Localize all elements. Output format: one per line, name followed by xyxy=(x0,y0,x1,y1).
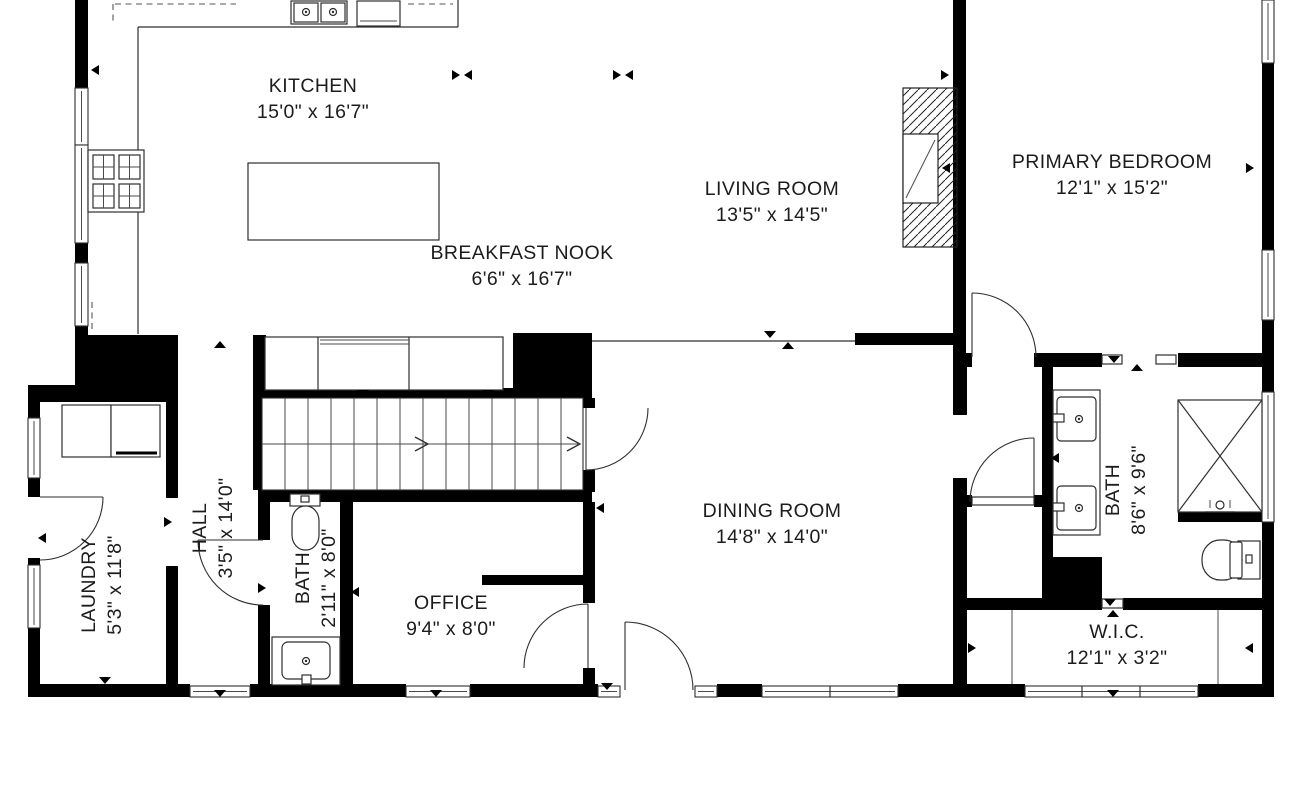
primary-bedroom-door xyxy=(972,293,1036,357)
window xyxy=(1262,0,1274,63)
staircase xyxy=(262,398,583,490)
bathroom-sink-icon xyxy=(272,637,340,685)
window xyxy=(1262,250,1274,320)
room-label-breakfast-nook: BREAKFAST NOOK 6'6" x 16'7" xyxy=(431,242,614,290)
kitchen-fixtures xyxy=(88,0,458,334)
room-label-bath-primary: BATH 8'6" x 9'6" xyxy=(1102,445,1150,535)
sidelite-window xyxy=(695,686,717,697)
range-stove-icon xyxy=(88,150,144,212)
shower-icon xyxy=(1178,400,1262,512)
room-name: PRIMARY BEDROOM xyxy=(1012,151,1212,173)
room-name: W.I.C. xyxy=(1089,621,1144,643)
room-label-dining-room: DINING ROOM 14'8" x 14'0" xyxy=(703,500,842,548)
walls xyxy=(28,0,1274,697)
entry-door xyxy=(625,622,693,690)
window xyxy=(28,418,40,478)
room-name: LAUNDRY xyxy=(78,537,100,633)
room-label-hall: HALL 3'5" x 14'0" xyxy=(189,478,237,579)
window xyxy=(75,145,88,243)
room-name: BATH xyxy=(292,552,314,604)
room-name: BATH xyxy=(1102,464,1124,516)
dryer-icon xyxy=(111,405,160,457)
dishwasher-icon xyxy=(357,1,400,26)
room-dimensions: 12'1" x 15'2" xyxy=(1056,177,1168,199)
office-door xyxy=(524,604,588,668)
room-label-wic: W.I.C. 12'1" x 3'2" xyxy=(1067,621,1168,669)
room-label-kitchen: KITCHEN 15'0" x 16'7" xyxy=(257,75,369,123)
room-dimensions: 9'4" x 8'0" xyxy=(406,618,496,640)
window xyxy=(1262,392,1274,522)
kitchen-island xyxy=(248,163,439,240)
window xyxy=(75,263,88,326)
room-name: OFFICE xyxy=(414,592,488,614)
room-dimensions: 3'5" x 14'0" xyxy=(215,478,237,579)
floor-plan: KITCHEN 15'0" x 16'7" BREAKFAST NOOK 6'6… xyxy=(0,0,1300,800)
room-dimensions: 6'6" x 16'7" xyxy=(472,268,573,290)
room-dimensions: 13'5" x 14'5" xyxy=(716,204,828,226)
washer-icon xyxy=(62,405,111,457)
room-label-primary-bedroom: PRIMARY BEDROOM 12'1" x 15'2" xyxy=(1012,151,1212,199)
floor-plan-page: KITCHEN 15'0" x 16'7" BREAKFAST NOOK 6'6… xyxy=(0,0,1300,800)
room-name: HALL xyxy=(189,503,211,553)
laundry-fixtures xyxy=(62,405,160,457)
closet-sliding-doors xyxy=(265,337,503,390)
kitchen-sink-icon xyxy=(291,1,347,24)
room-label-living-room: LIVING ROOM 13'5" x 14'5" xyxy=(705,178,839,226)
double-vanity-icon xyxy=(1053,390,1100,535)
toilet-icon xyxy=(290,494,320,550)
room-dimensions: 2'11" x 8'0" xyxy=(318,528,340,627)
window xyxy=(75,88,88,145)
room-dimensions: 12'1" x 3'2" xyxy=(1067,647,1168,669)
vestibule-door xyxy=(970,438,1034,502)
room-name: LIVING ROOM xyxy=(705,178,839,200)
room-dimensions: 14'8" x 14'0" xyxy=(716,526,828,548)
room-name: KITCHEN xyxy=(269,75,357,97)
room-label-office: OFFICE 9'4" x 8'0" xyxy=(406,592,496,640)
room-name: BREAKFAST NOOK xyxy=(431,242,614,264)
stair-landing-door xyxy=(586,408,648,470)
window xyxy=(28,565,40,628)
room-name: DINING ROOM xyxy=(703,500,842,522)
room-dimensions: 5'3" x 11'8" xyxy=(104,535,126,634)
window xyxy=(762,686,898,697)
primary-bath-fixtures xyxy=(1053,390,1262,580)
room-label-laundry: LAUNDRY 5'3" x 11'8" xyxy=(78,535,126,634)
room-dimensions: 8'6" x 9'6" xyxy=(1128,445,1150,535)
room-dimensions: 15'0" x 16'7" xyxy=(257,101,369,123)
toilet-icon xyxy=(1202,540,1260,580)
